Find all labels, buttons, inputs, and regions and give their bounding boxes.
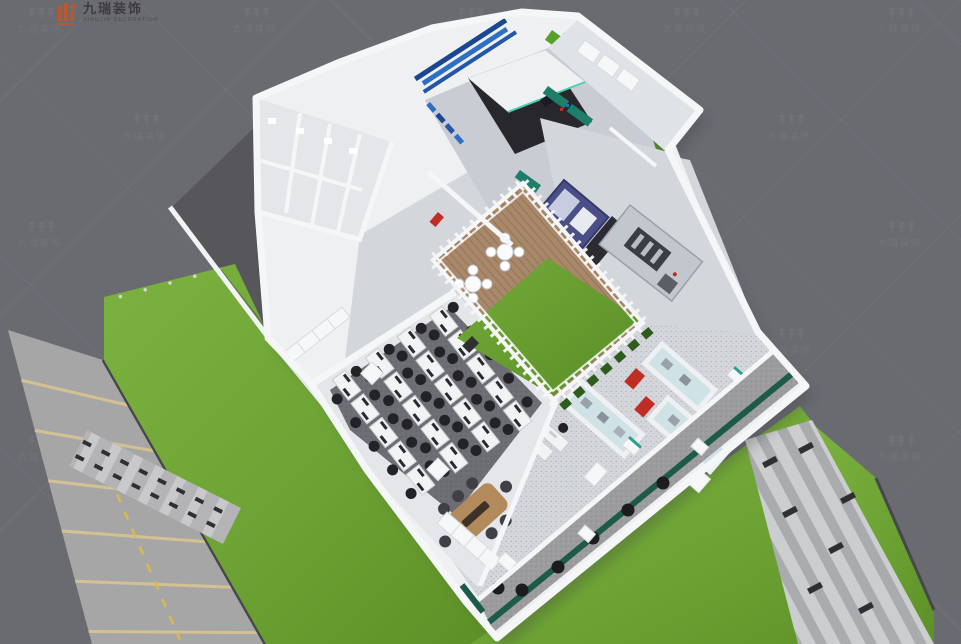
terrace-stool <box>622 504 635 517</box>
terrace-stool <box>657 477 670 490</box>
terrace-stool <box>552 561 565 574</box>
bollard <box>168 281 172 285</box>
render-canvas: ↟↟↟九瑞装饰↟↟↟九瑞装饰↟↟↟九瑞装饰↟↟↟九瑞装饰↟↟↟九瑞装饰↟↟↟九瑞… <box>0 0 961 644</box>
brand-logo: 九瑞装饰 XINGJIN DECORATION <box>57 2 159 28</box>
bollard <box>119 295 123 299</box>
parking-line <box>89 631 259 632</box>
terrace-stool <box>516 584 529 597</box>
brand-logo-icon <box>57 2 79 28</box>
bollard <box>193 274 197 278</box>
scene-svg <box>0 0 961 644</box>
brand-name-cn: 九瑞装饰 <box>83 2 159 16</box>
brand-name-en: XINGJIN DECORATION <box>83 17 159 23</box>
bollard <box>143 288 147 292</box>
